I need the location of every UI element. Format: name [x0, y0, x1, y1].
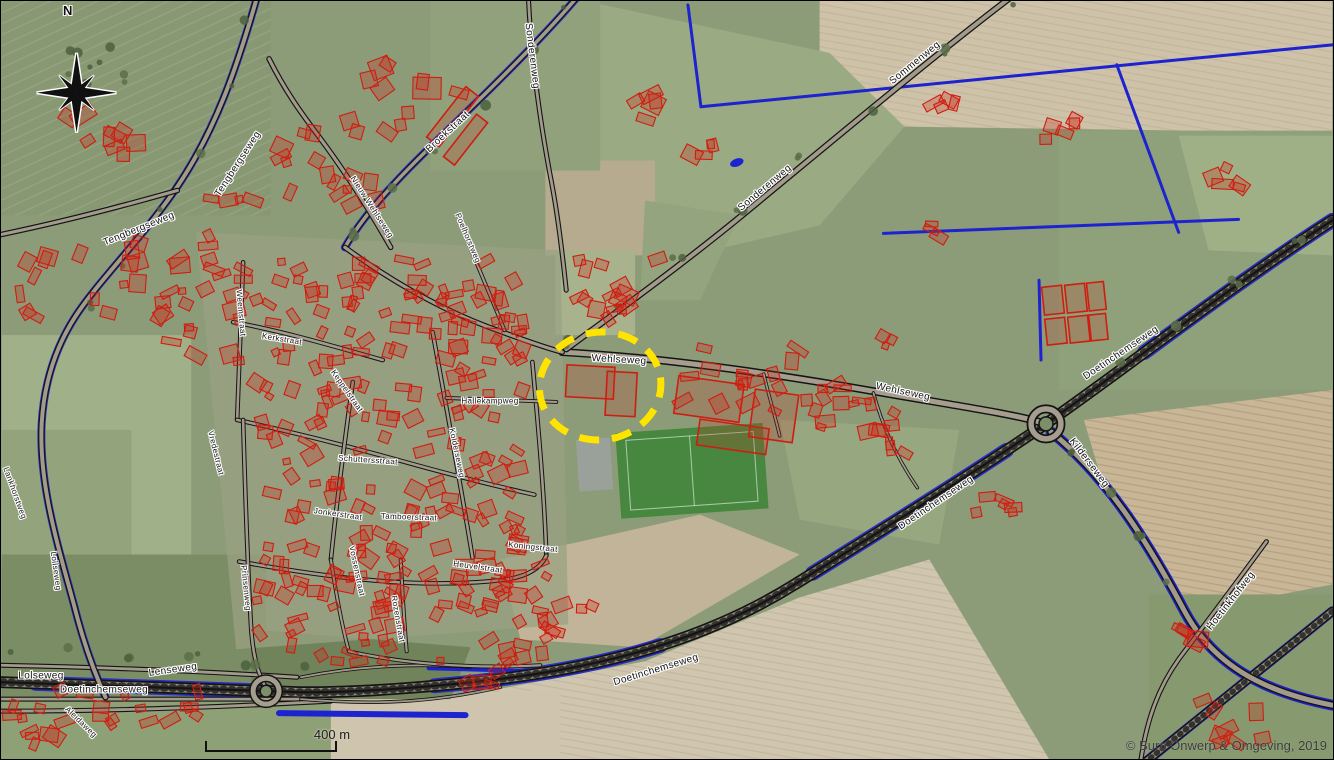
aerial-map[interactable]: TengbergsewegTengbergsewegBroekstraatSon… [0, 0, 1334, 760]
map-image [1, 1, 1333, 759]
scale-bar [205, 741, 337, 752]
scale-bar-label: 400 m [297, 727, 367, 742]
roundabout-southwest [253, 678, 279, 704]
roundabout-east [1031, 409, 1061, 439]
copyright-text: © Buro Onwerp & Omgeving, 2019 [1126, 738, 1327, 753]
north-label: N [63, 3, 72, 18]
